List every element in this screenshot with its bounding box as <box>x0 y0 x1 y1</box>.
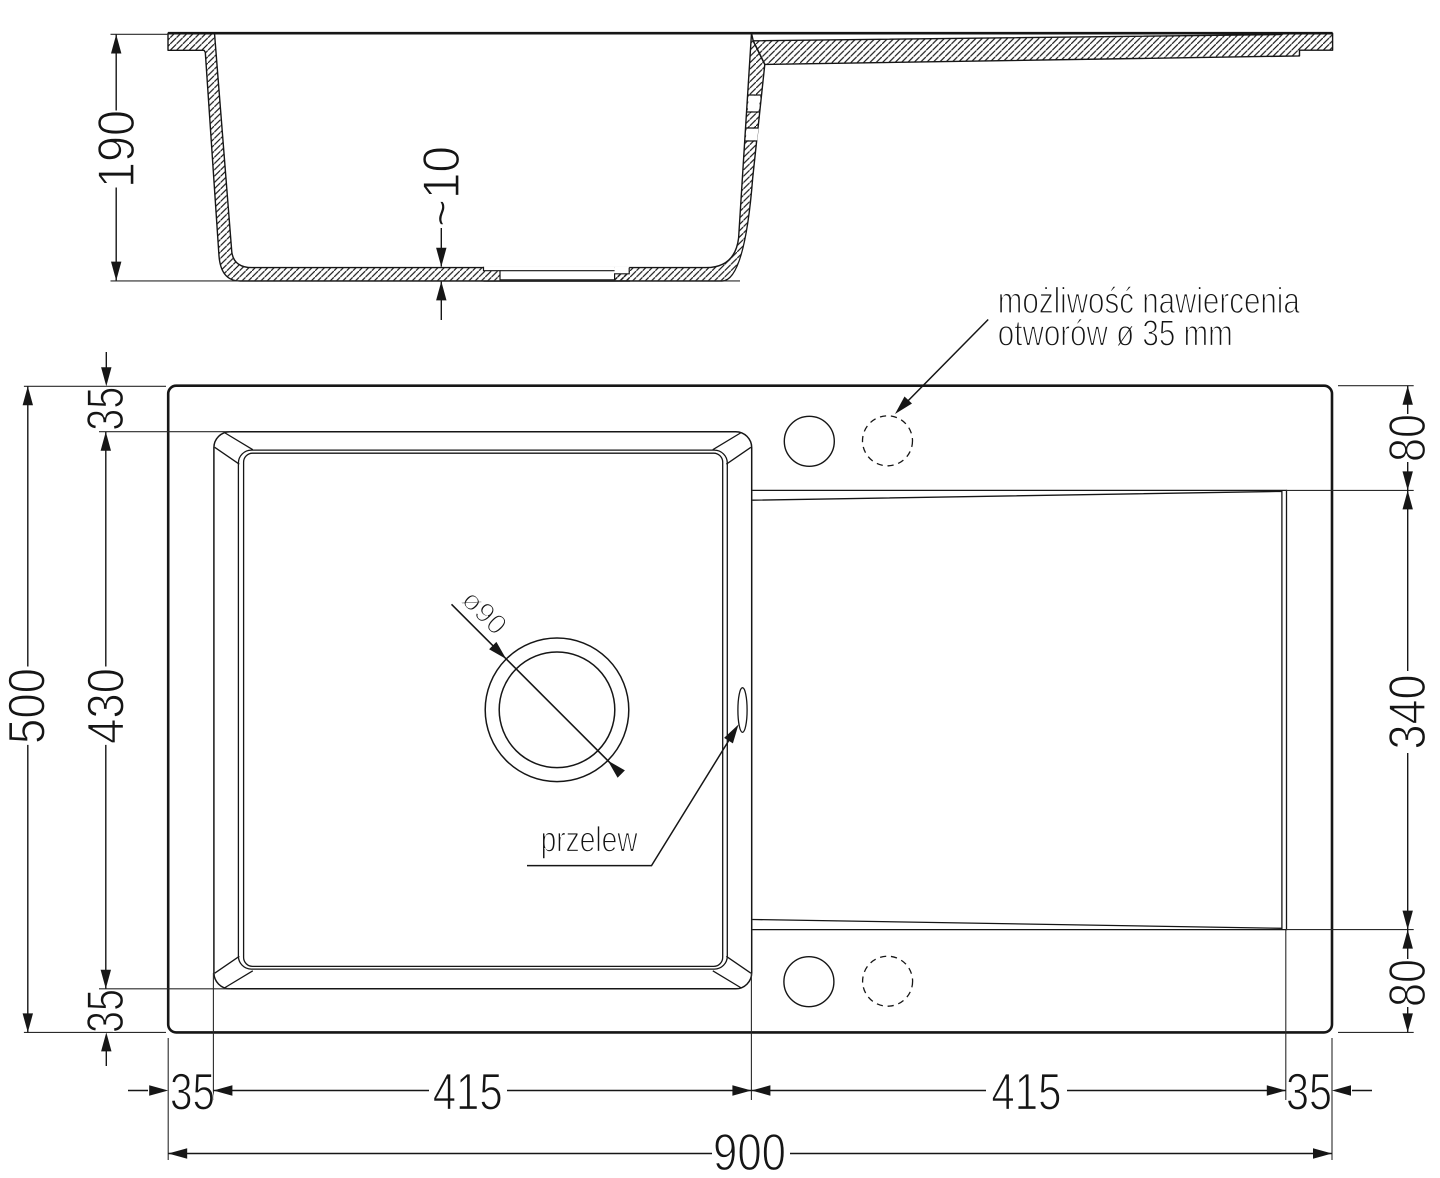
svg-text:500: 500 <box>0 668 56 744</box>
svg-text:415: 415 <box>991 1064 1061 1122</box>
svg-text:190: 190 <box>88 110 146 188</box>
svg-text:80: 80 <box>1379 959 1437 1007</box>
svg-text:415: 415 <box>433 1064 503 1122</box>
svg-text:35: 35 <box>1286 1064 1332 1122</box>
svg-text:900: 900 <box>713 1124 786 1178</box>
svg-text:35: 35 <box>77 989 135 1033</box>
svg-text:80: 80 <box>1379 414 1437 462</box>
svg-text:35: 35 <box>170 1064 215 1122</box>
svg-text:340: 340 <box>1379 675 1437 750</box>
svg-text:~10: ~10 <box>413 146 471 227</box>
svg-text:430: 430 <box>77 668 135 744</box>
svg-text:35: 35 <box>77 387 135 431</box>
svg-text:otworów ø 35 mm: otworów ø 35 mm <box>998 313 1233 354</box>
svg-text:przelew: przelew <box>541 819 638 859</box>
